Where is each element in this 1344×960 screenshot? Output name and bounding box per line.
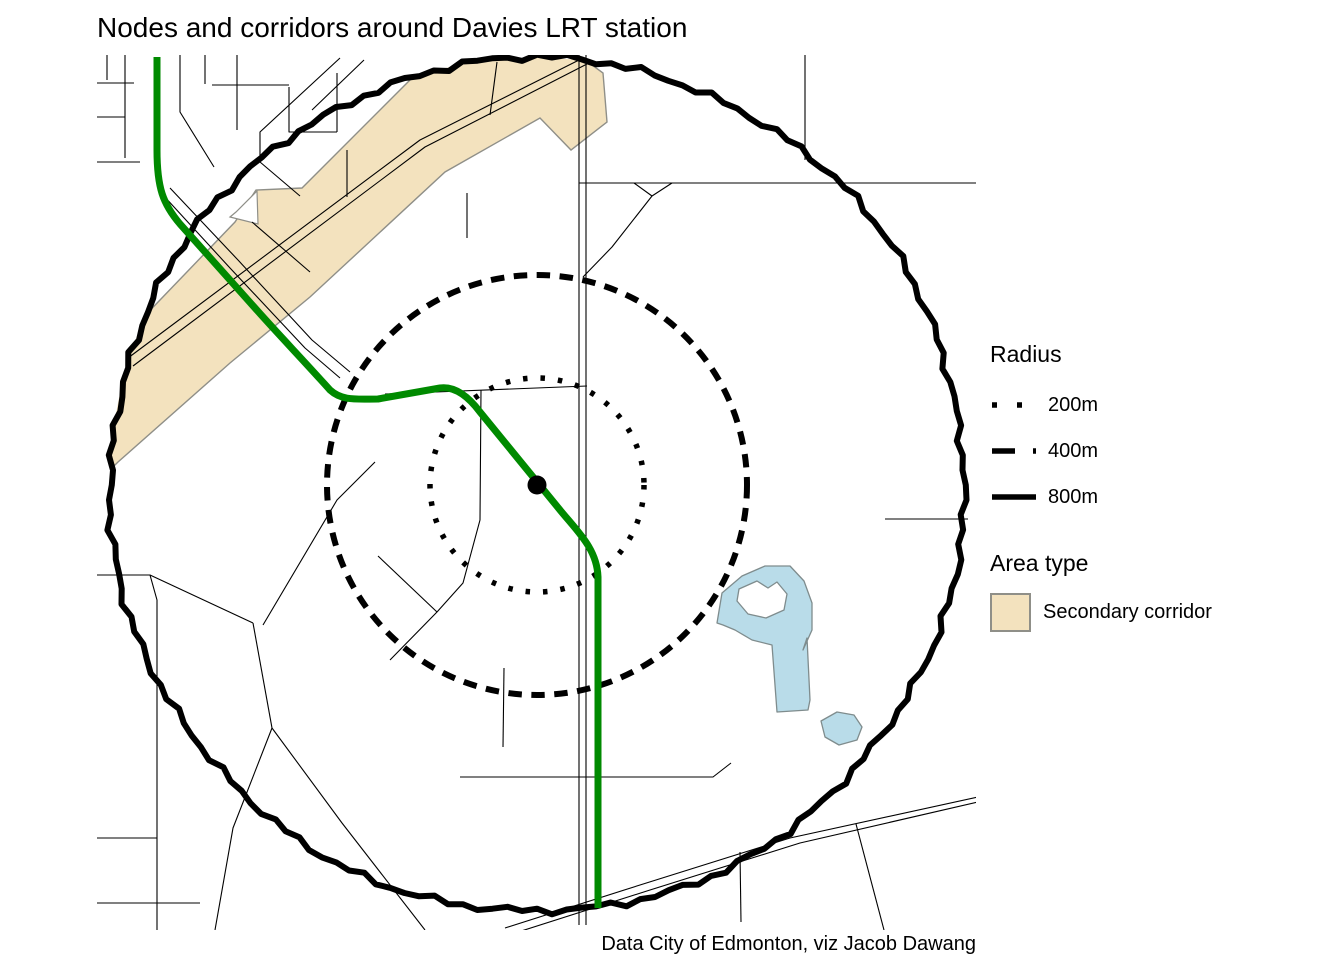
page-title: Nodes and corridors around Davies LRT st… <box>97 12 687 44</box>
secondary-corridor-area <box>100 50 607 480</box>
area-swatch-icon <box>990 593 1031 632</box>
source-caption: Data City of Edmonton, viz Jacob Dawang <box>500 933 976 956</box>
map-panel <box>97 50 978 933</box>
legend-item-200m: 200m <box>990 382 1320 428</box>
legend-item-secondary-corridor: Secondary corridor <box>990 593 1320 632</box>
legend: Radius 200m400m800m Area type Secondary … <box>990 341 1320 632</box>
map-figure: Nodes and corridors around Davies LRT st… <box>0 0 1344 960</box>
solid-line-key-icon <box>990 491 1038 503</box>
dashed-line-key-icon <box>990 445 1038 457</box>
legend-item-800m: 800m <box>990 474 1320 520</box>
legend-area-title: Area type <box>990 550 1320 577</box>
dotted-line-key-icon <box>990 399 1038 411</box>
station-node <box>528 476 547 495</box>
legend-item-label: 800m <box>1048 486 1098 509</box>
legend-item-label: Secondary corridor <box>1043 601 1212 624</box>
legend-item-400m: 400m <box>990 428 1320 474</box>
water-features <box>717 566 862 745</box>
legend-radius-title: Radius <box>990 341 1320 368</box>
legend-area-items: Secondary corridor <box>990 593 1320 632</box>
legend-item-label: 400m <box>1048 440 1098 463</box>
legend-radius-items: 200m400m800m <box>990 382 1320 520</box>
legend-item-label: 200m <box>1048 394 1098 417</box>
